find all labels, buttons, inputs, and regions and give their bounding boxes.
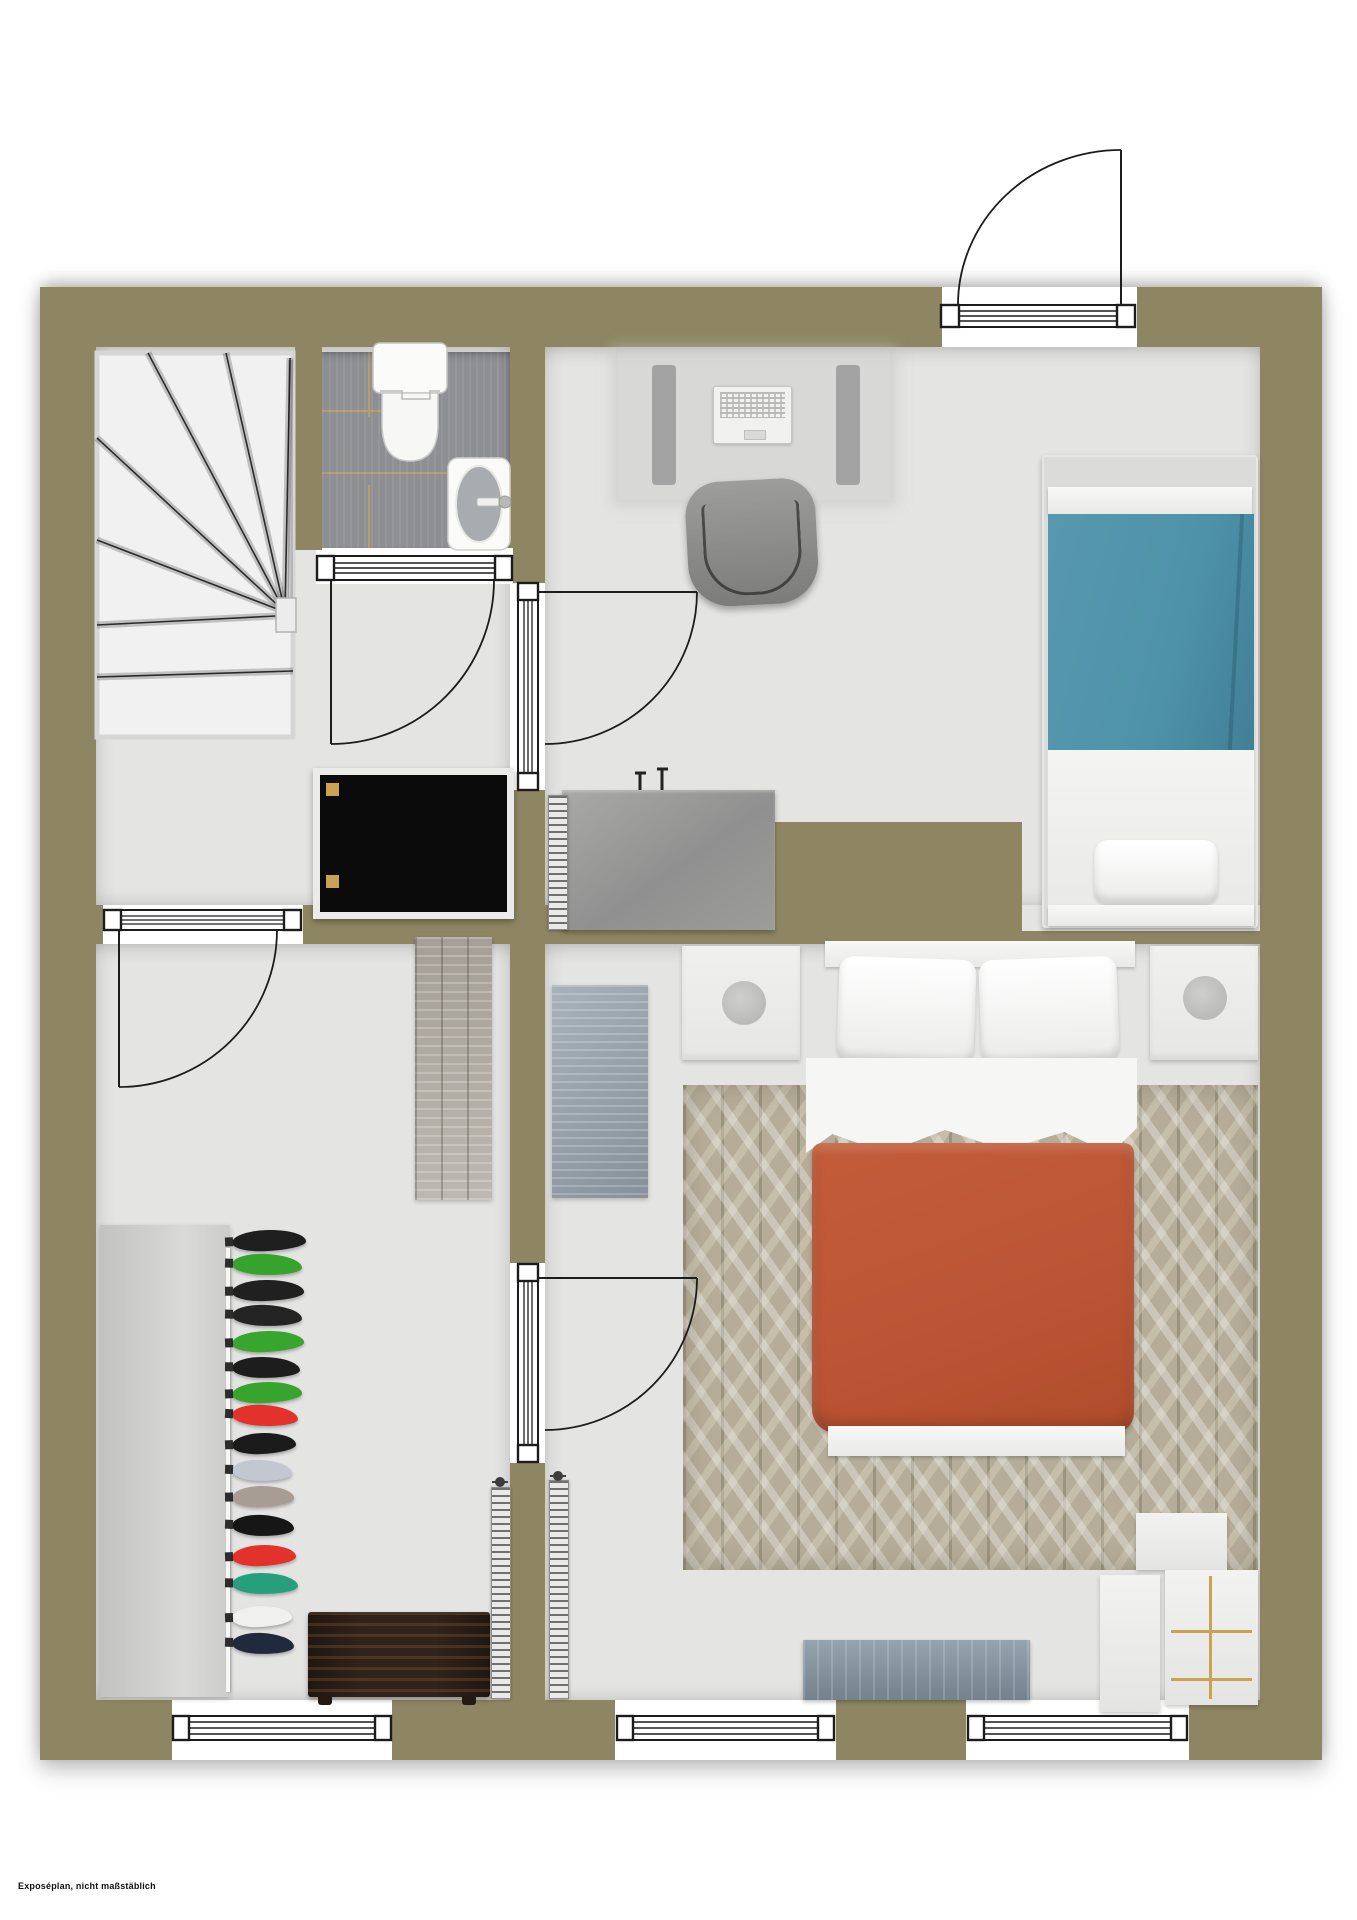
window-opening-1 bbox=[172, 1700, 392, 1760]
clothes-item bbox=[232, 1356, 300, 1378]
clothes-item bbox=[232, 1229, 307, 1253]
wardrobe-body bbox=[100, 1225, 230, 1697]
clothes-item bbox=[232, 1514, 295, 1537]
master-door-opening bbox=[510, 1263, 545, 1463]
single-bed-headboard bbox=[1048, 487, 1252, 514]
wooden-chest bbox=[308, 1612, 490, 1697]
double-bed-pillow-left bbox=[836, 956, 977, 1065]
dressing-door-opening bbox=[103, 905, 303, 944]
wood-plank-runner bbox=[415, 937, 492, 1200]
clothes-item bbox=[232, 1330, 305, 1354]
chest-foot-icon bbox=[318, 1696, 332, 1705]
corner-sideboard bbox=[1100, 1575, 1160, 1712]
wall-stairs-bathroom bbox=[295, 347, 322, 550]
kids-room-door-opening bbox=[510, 583, 545, 790]
laptop bbox=[713, 386, 792, 444]
single-bed-footboard bbox=[1048, 905, 1254, 926]
single-bed-pillow bbox=[1094, 840, 1218, 904]
corner-shelf-brass bbox=[1165, 1570, 1258, 1705]
black-cabinet bbox=[313, 768, 514, 919]
double-bed bbox=[800, 938, 1145, 1460]
nightstand-right bbox=[1150, 946, 1258, 1060]
brass-shelf-icon bbox=[1171, 1678, 1252, 1681]
cabinet-knob-icon bbox=[326, 875, 339, 888]
low-bench bbox=[803, 1640, 1030, 1700]
window-opening-2 bbox=[615, 1700, 836, 1760]
double-bed-pillow-right bbox=[978, 956, 1120, 1065]
clothes-item bbox=[232, 1304, 303, 1327]
double-bed-footboard bbox=[828, 1426, 1125, 1456]
radiator-icon bbox=[549, 1480, 569, 1699]
clothes-item bbox=[232, 1632, 295, 1655]
radiator-icon bbox=[548, 795, 568, 930]
floor-bathroom-tiles bbox=[322, 352, 510, 550]
clothes-item bbox=[232, 1605, 293, 1628]
corner-shelf-top bbox=[1136, 1513, 1227, 1570]
chest-foot-icon bbox=[462, 1696, 476, 1705]
clothes-item bbox=[232, 1432, 297, 1455]
blue-gray-mat bbox=[552, 985, 648, 1198]
floorplan-page: Exposéplan, nicht maßstäblich bbox=[0, 0, 1357, 1920]
single-bed bbox=[1042, 455, 1258, 928]
clothes-item bbox=[232, 1544, 297, 1567]
clothes-item bbox=[232, 1381, 303, 1404]
double-bed-orange-blanket bbox=[812, 1143, 1134, 1433]
entrance-door-opening bbox=[942, 287, 1137, 347]
brass-shelf-icon bbox=[1171, 1630, 1252, 1633]
single-bed-blue-duvet bbox=[1048, 514, 1254, 750]
monitor-stand bbox=[836, 365, 860, 485]
monitor-stand bbox=[652, 365, 676, 485]
clothes-item bbox=[231, 1403, 298, 1427]
hanging-clothes bbox=[232, 1228, 312, 1694]
radiator-icon bbox=[491, 1487, 511, 1699]
clothes-item bbox=[232, 1279, 304, 1301]
disclaimer-text: Exposéplan, nicht maßstäblich bbox=[18, 1881, 156, 1891]
bathroom-door-opening bbox=[316, 548, 513, 584]
gray-dresser bbox=[562, 790, 775, 930]
clothes-item bbox=[232, 1253, 303, 1276]
nightstand-left bbox=[682, 946, 800, 1060]
clothes-item bbox=[232, 1485, 294, 1507]
laptop-trackpad-icon bbox=[744, 430, 766, 440]
laptop-keyboard-icon bbox=[720, 392, 785, 418]
clothes-item bbox=[232, 1572, 298, 1594]
wall-block-center bbox=[775, 822, 1022, 944]
office-chair bbox=[684, 477, 820, 609]
cabinet-knob-icon bbox=[326, 783, 339, 796]
clothes-item bbox=[232, 1459, 293, 1482]
